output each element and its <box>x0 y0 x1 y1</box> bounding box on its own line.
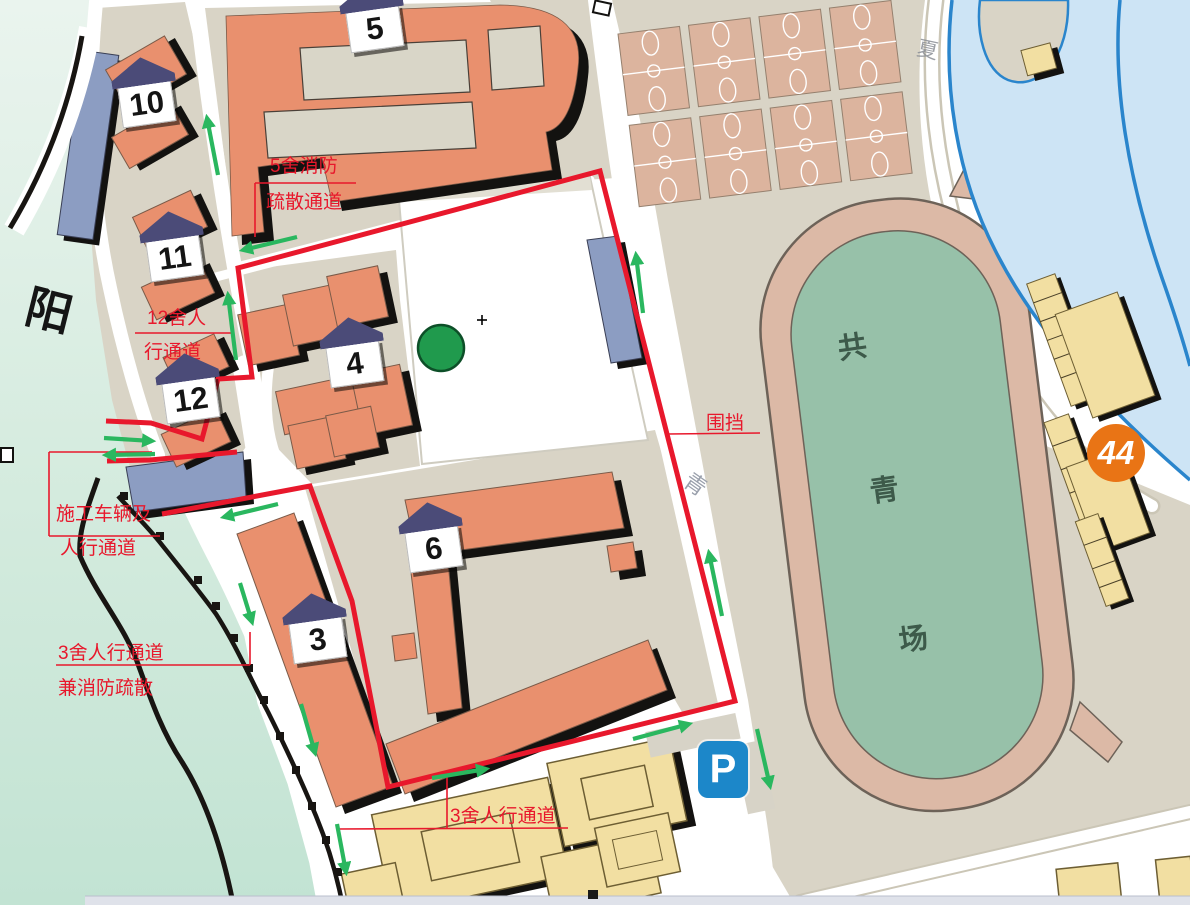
label-route3b: 3舍人行通道 <box>450 807 556 826</box>
shore-marker <box>1 448 13 462</box>
flow-arrow-left-gate <box>106 454 155 455</box>
campus-map: 阳 共 青 场 青 夏 5舍消防 疏散通道 12舍人 行通道 施工车辆及 人行通… <box>0 0 1190 905</box>
field-name-char-2: 青 <box>868 475 901 508</box>
road-name-char-top: 夏 <box>915 38 940 63</box>
building-badge-3: 3 <box>279 589 354 666</box>
field-name-char-1: 共 <box>836 332 869 365</box>
label-route3-line1: 3舍人行通道 <box>58 644 164 663</box>
flow-arrow-right-gate <box>104 438 152 441</box>
label-construction-line1: 施工车辆及 <box>56 505 151 524</box>
building-badge-6: 6 <box>395 498 470 575</box>
label-route12-line1: 12舍人 <box>147 309 206 328</box>
label-fence: 围挡 <box>706 414 744 433</box>
building-badge-11: 11 <box>136 207 211 284</box>
map-canvas <box>0 0 1190 905</box>
building-badge-4: 4 <box>316 313 391 390</box>
label-route5-line1: 5舍消防 <box>270 157 338 176</box>
field-name-char-3: 场 <box>897 624 930 657</box>
label-route3-line2: 兼消防疏散 <box>58 679 153 698</box>
label-route5-line2: 疏散通道 <box>266 193 342 212</box>
building-badge-10: 10 <box>108 53 183 130</box>
tree <box>418 325 464 371</box>
building-badge-12: 12 <box>152 349 227 426</box>
building-badge-5: 5 <box>336 0 411 54</box>
parking-sign: P <box>698 741 748 798</box>
stop-badge-44: 44 <box>1087 424 1145 482</box>
gate-marker <box>593 0 611 15</box>
label-construction-line2: 人行通道 <box>60 539 136 558</box>
